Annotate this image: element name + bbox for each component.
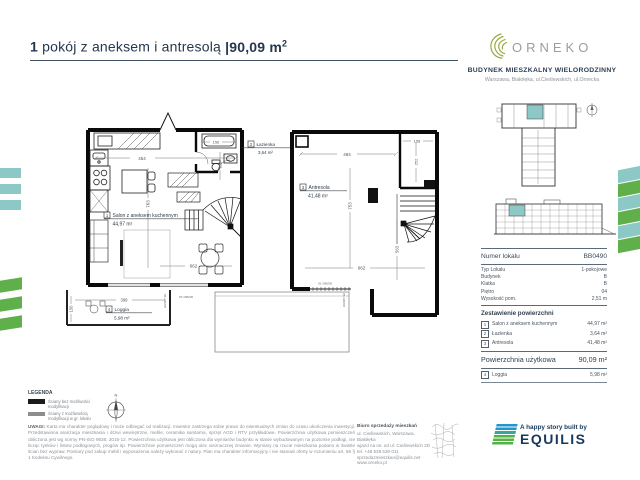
page-title: 1 pokój z aneksem i antresolą |90,09 m2 [30,38,287,55]
svg-text:Salon z aneksem kuchennym: Salon z aneksem kuchennym [113,213,178,219]
svg-text:05.39B/0B: 05.39B/0B [318,282,332,286]
svg-text:Loggia: Loggia [115,307,130,313]
area-row: 1Salon z aneksem kuchennym 44,97 m² [481,320,607,330]
svg-text:158: 158 [414,139,421,144]
entrance-door-icon [160,113,176,130]
highlighted-unit [527,105,543,119]
room-labels: 1 Salon z aneksem kuchennym 44,97 m² 2 Ł… [104,141,292,321]
svg-text:4: 4 [108,307,111,312]
kitchen-fixtures [90,133,160,212]
svg-text:3,64 m²: 3,64 m² [258,150,273,155]
areas-header: Zestawienie powierzchni [481,310,607,318]
floor-plan-mezzanine: 494 158 252 753 563 662 05.39B/0B 05.39B… [285,108,460,358]
divider [481,264,607,265]
shaft [296,136,308,147]
total-area-row: Powierzchnia użytkowa 90,09 m² [481,354,607,366]
office-address2: wjazd na os. od ul. Cieślewskich 2D [357,443,433,449]
duct [424,180,435,188]
dimension-lines [71,142,238,322]
svg-text:5,98 m²: 5,98 m² [114,316,130,321]
divider [481,382,607,383]
total-area-value: 90,09 m² [579,354,607,366]
detail-row: KlatkaB [481,281,607,288]
title-rule [30,60,458,61]
unit-details-panel: Numer lokalu BB0490 Typ Lokalu1-pokojowe… [481,246,607,385]
detail-row: Typ Lokalu1-pokojowe [481,267,607,274]
notes-text: Karta ma charakter poglądowy i może odbi… [28,424,355,460]
svg-text:662: 662 [358,266,366,271]
building-elevation [492,194,618,242]
stairs-icon [185,197,242,238]
svg-text:N: N [115,393,118,398]
left-green-stripe [0,277,22,292]
svg-text:494: 494 [343,152,351,157]
area-sup: 2 [282,38,287,48]
svg-text:2: 2 [250,142,253,147]
svg-text:Łazienka: Łazienka [257,142,276,147]
divider [481,368,607,369]
office-website: www.orneko.pl [357,460,433,466]
orneko-logo-text: ORNEKO [512,40,592,55]
svg-text:44,97 m²: 44,97 m² [113,222,133,228]
svg-text:563: 563 [395,245,400,253]
svg-text:252: 252 [218,161,223,168]
stairs-icon [397,194,435,244]
title-text: pokój z aneksem i antresolą [42,39,221,55]
building-subtitle: Warszawa, Białołęka, ul.Cieślewskich, ul… [452,77,632,83]
area-row: 3Antresola 41,48 m² [481,339,607,349]
svg-text:156: 156 [213,140,220,145]
svg-text:454: 454 [138,156,146,161]
svg-text:753: 753 [348,202,353,210]
site-compass-icon [587,103,597,117]
equilis-logo: A happy story built by EQUILIS [494,424,587,447]
rooms-count: 1 [30,39,38,55]
legend-title: LEGENDA [28,390,103,396]
equilis-flag-icon [491,424,517,447]
unit-number-value: BB0490 [584,251,607,262]
living-furniture [86,220,223,313]
divider [481,305,607,306]
wall-fixed-swatch [28,399,45,404]
site-plan [480,100,610,192]
svg-text:252: 252 [414,158,419,165]
orneko-leaf-icon [489,33,511,59]
svg-text:05.39B/0B: 05.39B/0B [179,295,193,299]
door-arcs [196,152,230,172]
office-address: ul. Cieślewskich, Warszawa, Białołęka [357,431,433,443]
left-teal-stripe [0,200,21,210]
area-row: 2Łazienka 3,64 m² [481,330,607,340]
svg-text:41,48 m²: 41,48 m² [308,194,328,200]
walls [88,130,242,285]
svg-text:763: 763 [146,200,151,208]
legend-item: Ściany z możliwością modyfikacji w gr. l… [28,411,103,421]
unit-number-label: Numer lokalu [481,251,520,262]
detail-row: BudynekB [481,274,607,281]
svg-text:05.39B/0B: 05.39B/0B [342,293,346,307]
divider [481,351,607,352]
svg-text:662: 662 [190,264,198,269]
svg-text:150: 150 [69,305,74,313]
area-text: |90,09 m [225,39,282,55]
left-green-stripe [0,315,22,330]
office-title: Biuro sprzedaży mieszkań [357,424,433,430]
legend-item: Ściany bez możliwości modyfikacji [28,399,103,409]
left-green-stripe [0,296,22,311]
left-teal-stripe [0,168,21,178]
apartment-card: 1 pokój z aneksem i antresolą |90,09 m2 … [0,0,640,480]
detail-row: Wysokość pom.2,51 m [481,296,607,303]
svg-text:1: 1 [106,213,109,218]
svg-text:399: 399 [121,298,129,303]
stamp-scribble [430,421,460,461]
room-number-badge: 2 [481,330,489,338]
room-number-badge: 1 [481,321,489,329]
total-area-label: Powierzchnia użytkowa [481,354,556,366]
left-teal-stripe [0,184,21,194]
room-labels: 3 Antresola 41,48 m² [300,184,347,200]
right-stripes [618,168,640,256]
svg-text:Antresola: Antresola [309,185,330,191]
building-title: BUDYNEK MIESZKALNY WIELORODZINNY [452,67,632,74]
wardrobes [168,173,200,202]
notes-label: UWAGI: [28,424,45,429]
legend: LEGENDA Ściany bez możliwości modyfikacj… [28,390,103,424]
disclaimer-notes: UWAGI: Karta ma charakter poglądowy i mo… [28,424,355,462]
wall-modifiable-swatch [28,412,45,417]
unit-number-row: Numer lokalu BB0490 [481,251,607,262]
highlighted-unit-elevation [509,205,525,216]
svg-text:05.39B/0B: 05.39B/0B [163,294,167,308]
room-number-badge: 4 [481,371,489,379]
balustrade [310,287,351,291]
loggia-row: 4Loggia 5,98 m² [481,371,607,381]
room-number-badge: 3 [481,340,489,348]
compass-rose-icon: N [103,392,129,424]
equilis-name: EQUILIS [520,432,587,446]
void-opening [368,188,378,203]
svg-text:3: 3 [302,185,305,190]
divider [481,248,607,249]
sales-office-block: Biuro sprzedaży mieszkań ul. Cieślewskic… [357,424,433,466]
detail-row: Piętro04 [481,289,607,296]
